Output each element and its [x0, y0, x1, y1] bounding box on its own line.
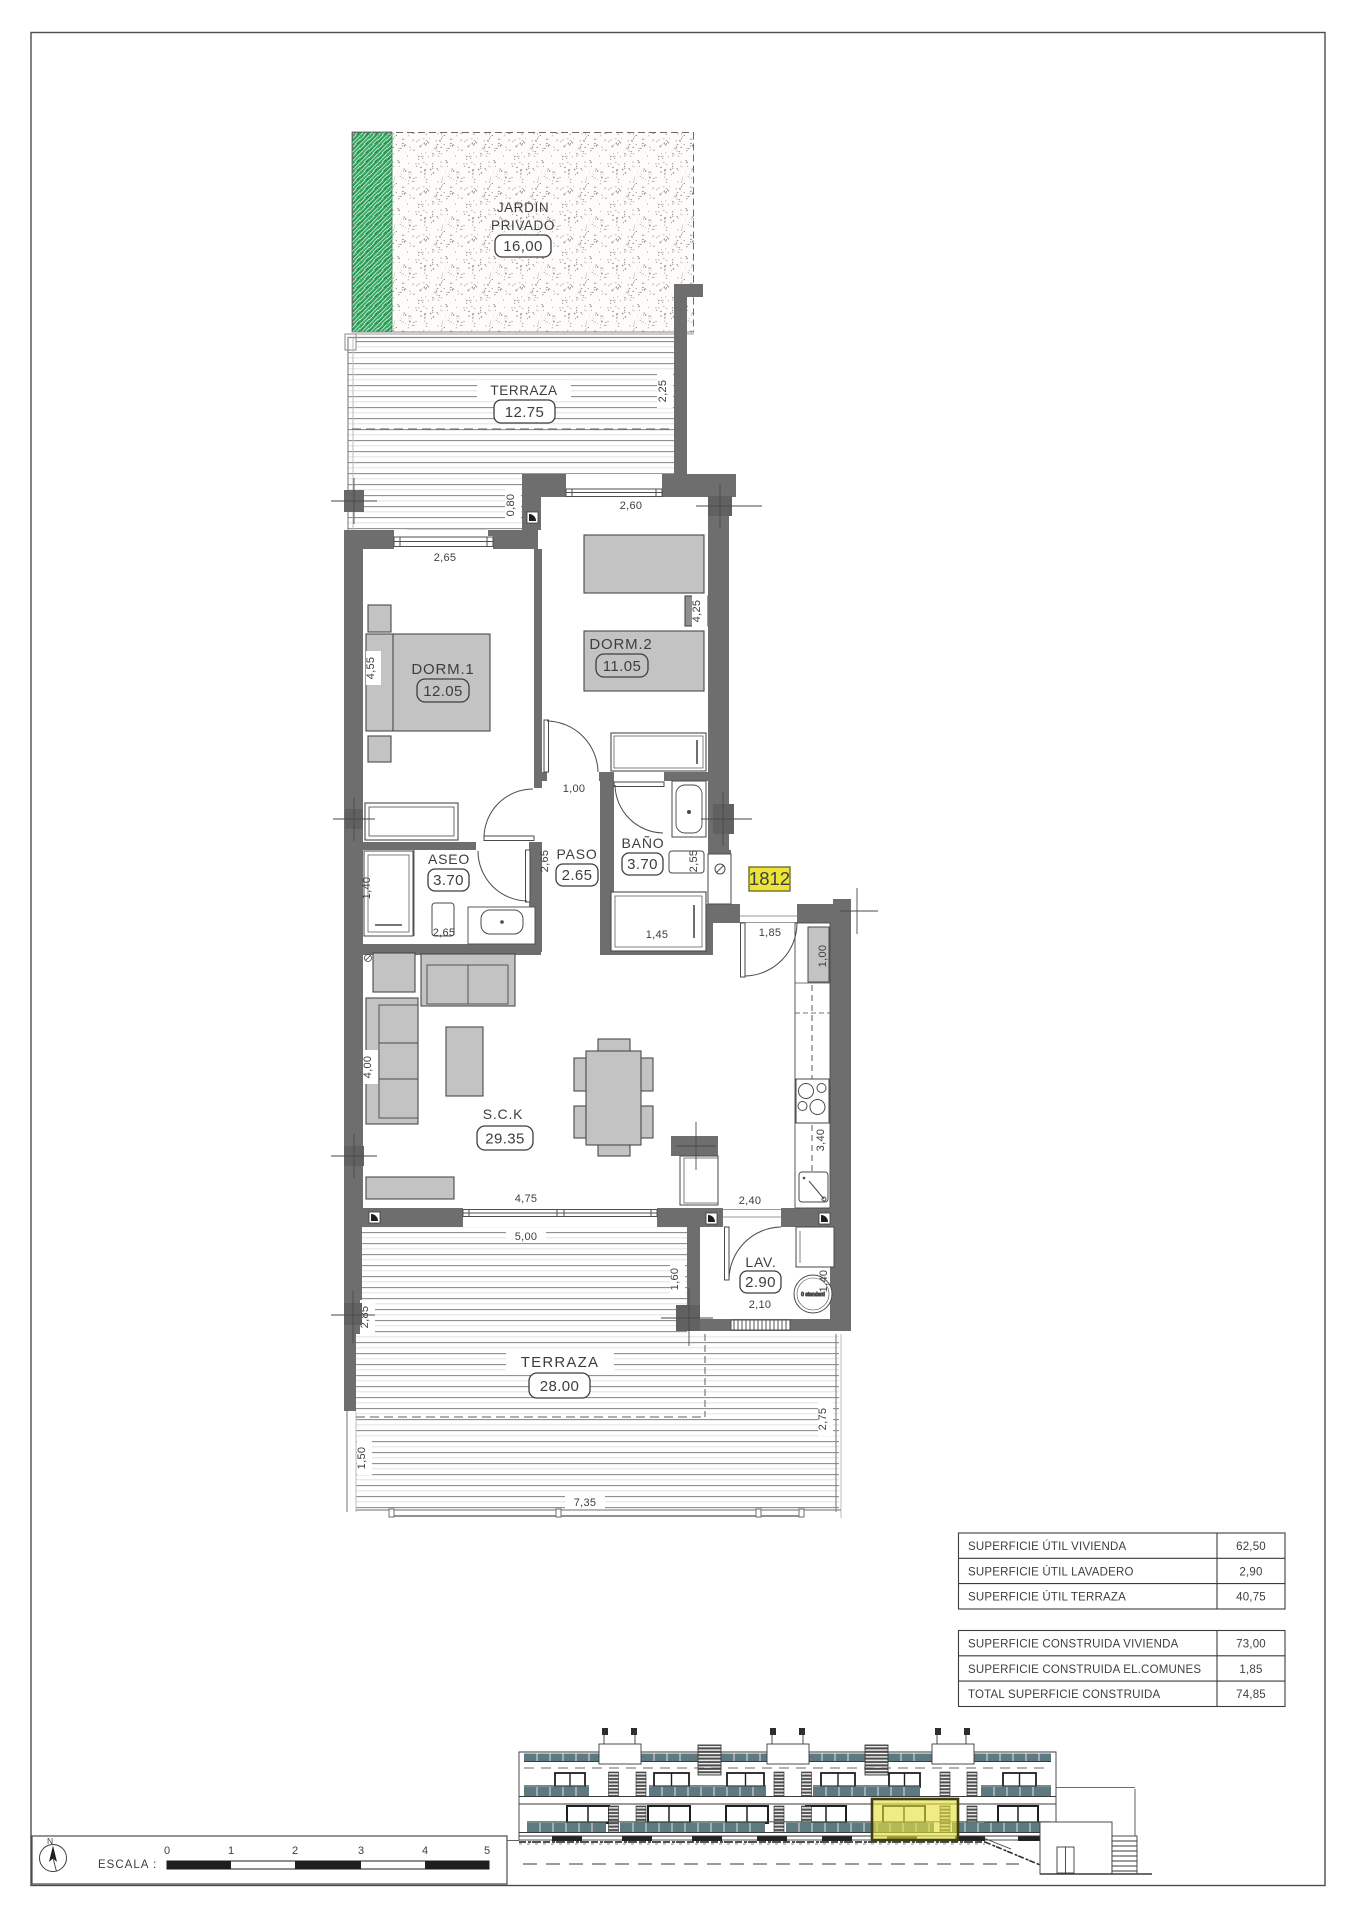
svg-text:1812: 1812 — [749, 868, 790, 889]
svg-text:1,45: 1,45 — [646, 929, 669, 941]
svg-text:40,75: 40,75 — [1236, 1592, 1266, 1604]
svg-text:7,35: 7,35 — [574, 1497, 597, 1509]
svg-text:1,60: 1,60 — [669, 1268, 681, 1291]
svg-text:LAV.: LAV. — [745, 1254, 776, 1270]
svg-text:1,40: 1,40 — [818, 1270, 830, 1293]
svg-text:2,90: 2,90 — [1239, 1566, 1262, 1578]
svg-text:74,85: 74,85 — [1236, 1689, 1266, 1701]
svg-text:4: 4 — [422, 1845, 428, 1857]
svg-text:1,00: 1,00 — [817, 945, 829, 968]
svg-text:4,00: 4,00 — [362, 1056, 374, 1079]
svg-text:29.35: 29.35 — [485, 1131, 525, 1148]
svg-text:5: 5 — [484, 1845, 490, 1857]
svg-text:5,00: 5,00 — [515, 1231, 538, 1243]
svg-text:4,55: 4,55 — [365, 657, 377, 680]
svg-text:1,00: 1,00 — [563, 783, 586, 795]
svg-text:2,10: 2,10 — [749, 1299, 772, 1311]
svg-text:11.05: 11.05 — [603, 658, 641, 675]
svg-text:2,75: 2,75 — [817, 1408, 829, 1431]
svg-text:ASEO: ASEO — [428, 851, 470, 867]
svg-text:4,25: 4,25 — [691, 600, 703, 623]
svg-text:TERRAZA: TERRAZA — [490, 383, 557, 398]
svg-text:2,65: 2,65 — [539, 850, 551, 873]
svg-text:DORM.1: DORM.1 — [411, 661, 474, 678]
svg-text:2,40: 2,40 — [739, 1195, 762, 1207]
svg-text:N: N — [47, 1836, 53, 1846]
svg-text:PASO: PASO — [556, 846, 597, 862]
svg-text:SUPERFICIE CONSTRUIDA EL.COMUN: SUPERFICIE CONSTRUIDA EL.COMUNES — [968, 1664, 1201, 1676]
svg-text:3: 3 — [358, 1845, 364, 1857]
svg-text:16,00: 16,00 — [503, 238, 543, 255]
svg-text:DORM.2: DORM.2 — [589, 636, 652, 653]
svg-text:SUPERFICIE ÚTIL VIVIENDA: SUPERFICIE ÚTIL VIVIENDA — [968, 1540, 1127, 1553]
svg-text:62,50: 62,50 — [1236, 1541, 1266, 1553]
svg-text:3.70: 3.70 — [433, 872, 464, 889]
svg-text:12.75: 12.75 — [505, 404, 545, 421]
svg-text:2,65: 2,65 — [434, 552, 457, 564]
svg-text:3.70: 3.70 — [627, 856, 658, 873]
svg-text:2,65: 2,65 — [433, 927, 456, 939]
svg-text:ESCALA :: ESCALA : — [98, 1859, 157, 1871]
svg-text:28.00: 28.00 — [540, 1378, 580, 1395]
svg-text:1,85: 1,85 — [1239, 1664, 1262, 1676]
svg-text:1: 1 — [228, 1845, 234, 1857]
svg-text:0,80: 0,80 — [505, 494, 517, 517]
svg-text:2,55: 2,55 — [688, 850, 700, 873]
svg-text:0: 0 — [164, 1845, 170, 1857]
svg-text:TOTAL SUPERFICIE CONSTRUIDA: TOTAL SUPERFICIE CONSTRUIDA — [968, 1689, 1161, 1701]
svg-text:SUPERFICIE ÚTIL TERRAZA: SUPERFICIE ÚTIL TERRAZA — [968, 1591, 1126, 1604]
svg-text:3,40: 3,40 — [815, 1129, 827, 1152]
svg-text:73,00: 73,00 — [1236, 1639, 1266, 1651]
svg-text:2: 2 — [292, 1845, 298, 1857]
svg-text:4,75: 4,75 — [515, 1193, 538, 1205]
svg-text:TERRAZA: TERRAZA — [521, 1354, 599, 1371]
svg-text:2,25: 2,25 — [657, 380, 669, 403]
svg-text:PRIVADO: PRIVADO — [491, 218, 555, 233]
svg-text:1,85: 1,85 — [759, 927, 782, 939]
svg-text:S.C.K: S.C.K — [483, 1106, 524, 1122]
svg-text:12.05: 12.05 — [423, 683, 463, 700]
svg-text:2.90: 2.90 — [745, 1274, 776, 1291]
svg-text:1,40: 1,40 — [361, 877, 373, 900]
svg-text:2,60: 2,60 — [620, 500, 643, 512]
svg-text:SUPERFICIE ÚTIL LAVADERO: SUPERFICIE ÚTIL LAVADERO — [968, 1565, 1134, 1578]
svg-text:SUPERFICIE CONSTRUIDA VIVIENDA: SUPERFICIE CONSTRUIDA VIVIENDA — [968, 1639, 1179, 1651]
svg-text:2.65: 2.65 — [562, 867, 593, 884]
svg-text:JARDIN: JARDIN — [497, 200, 549, 215]
svg-text:BAÑO: BAÑO — [622, 835, 665, 851]
svg-text:1,50: 1,50 — [356, 1447, 368, 1470]
